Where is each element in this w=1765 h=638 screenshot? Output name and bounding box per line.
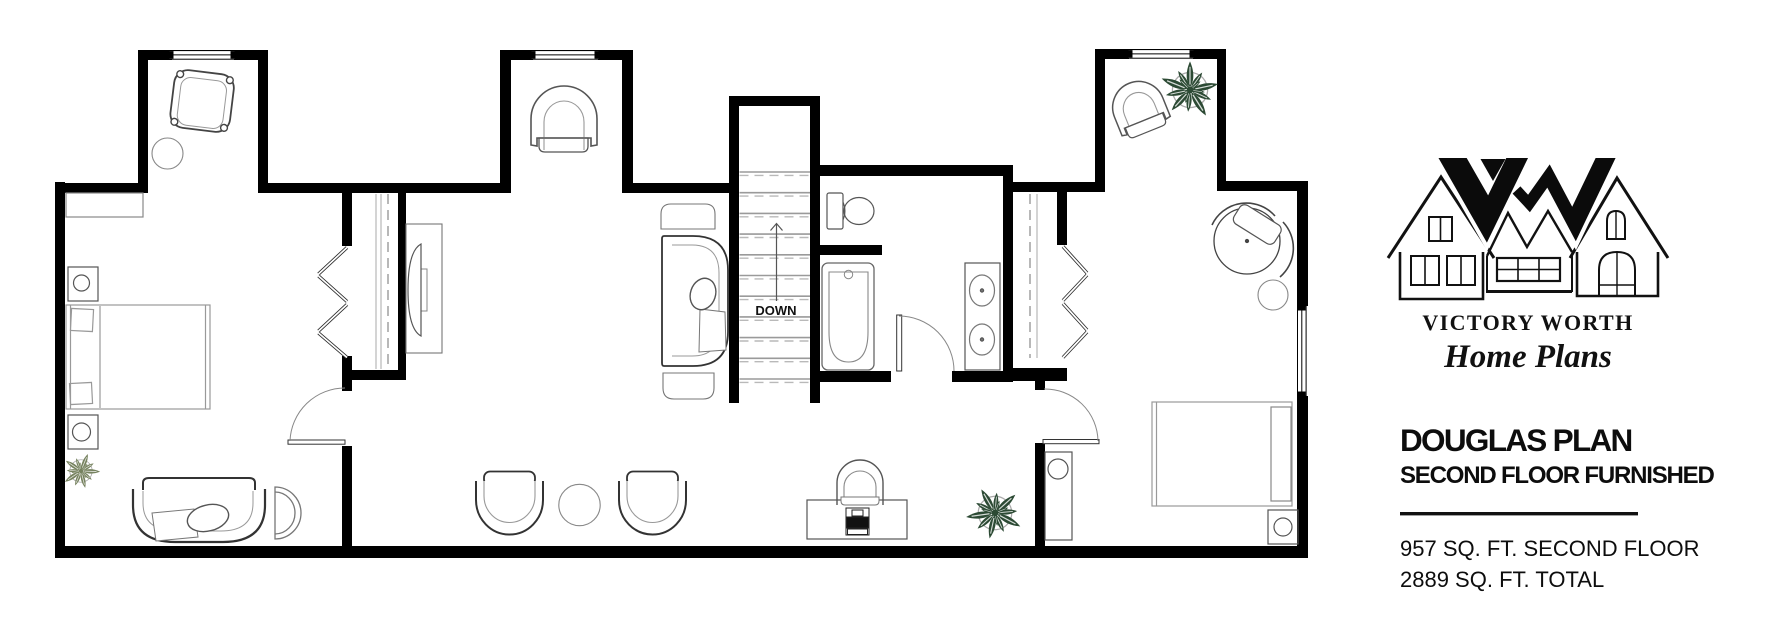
- svg-text:SECOND FLOOR FURNISHED: SECOND FLOOR FURNISHED: [1400, 462, 1714, 489]
- svg-text:2889 SQ. FT. TOTAL: 2889 SQ. FT. TOTAL: [1400, 567, 1604, 592]
- svg-text:Home Plans: Home Plans: [1443, 339, 1612, 375]
- svg-text:957 SQ. FT. SECOND FLOOR: 957 SQ. FT. SECOND FLOOR: [1400, 536, 1700, 561]
- svg-text:DOUGLAS PLAN: DOUGLAS PLAN: [1400, 422, 1632, 458]
- svg-text:DOWN: DOWN: [755, 303, 796, 318]
- svg-text:VICTORY WORTH: VICTORY WORTH: [1422, 310, 1633, 335]
